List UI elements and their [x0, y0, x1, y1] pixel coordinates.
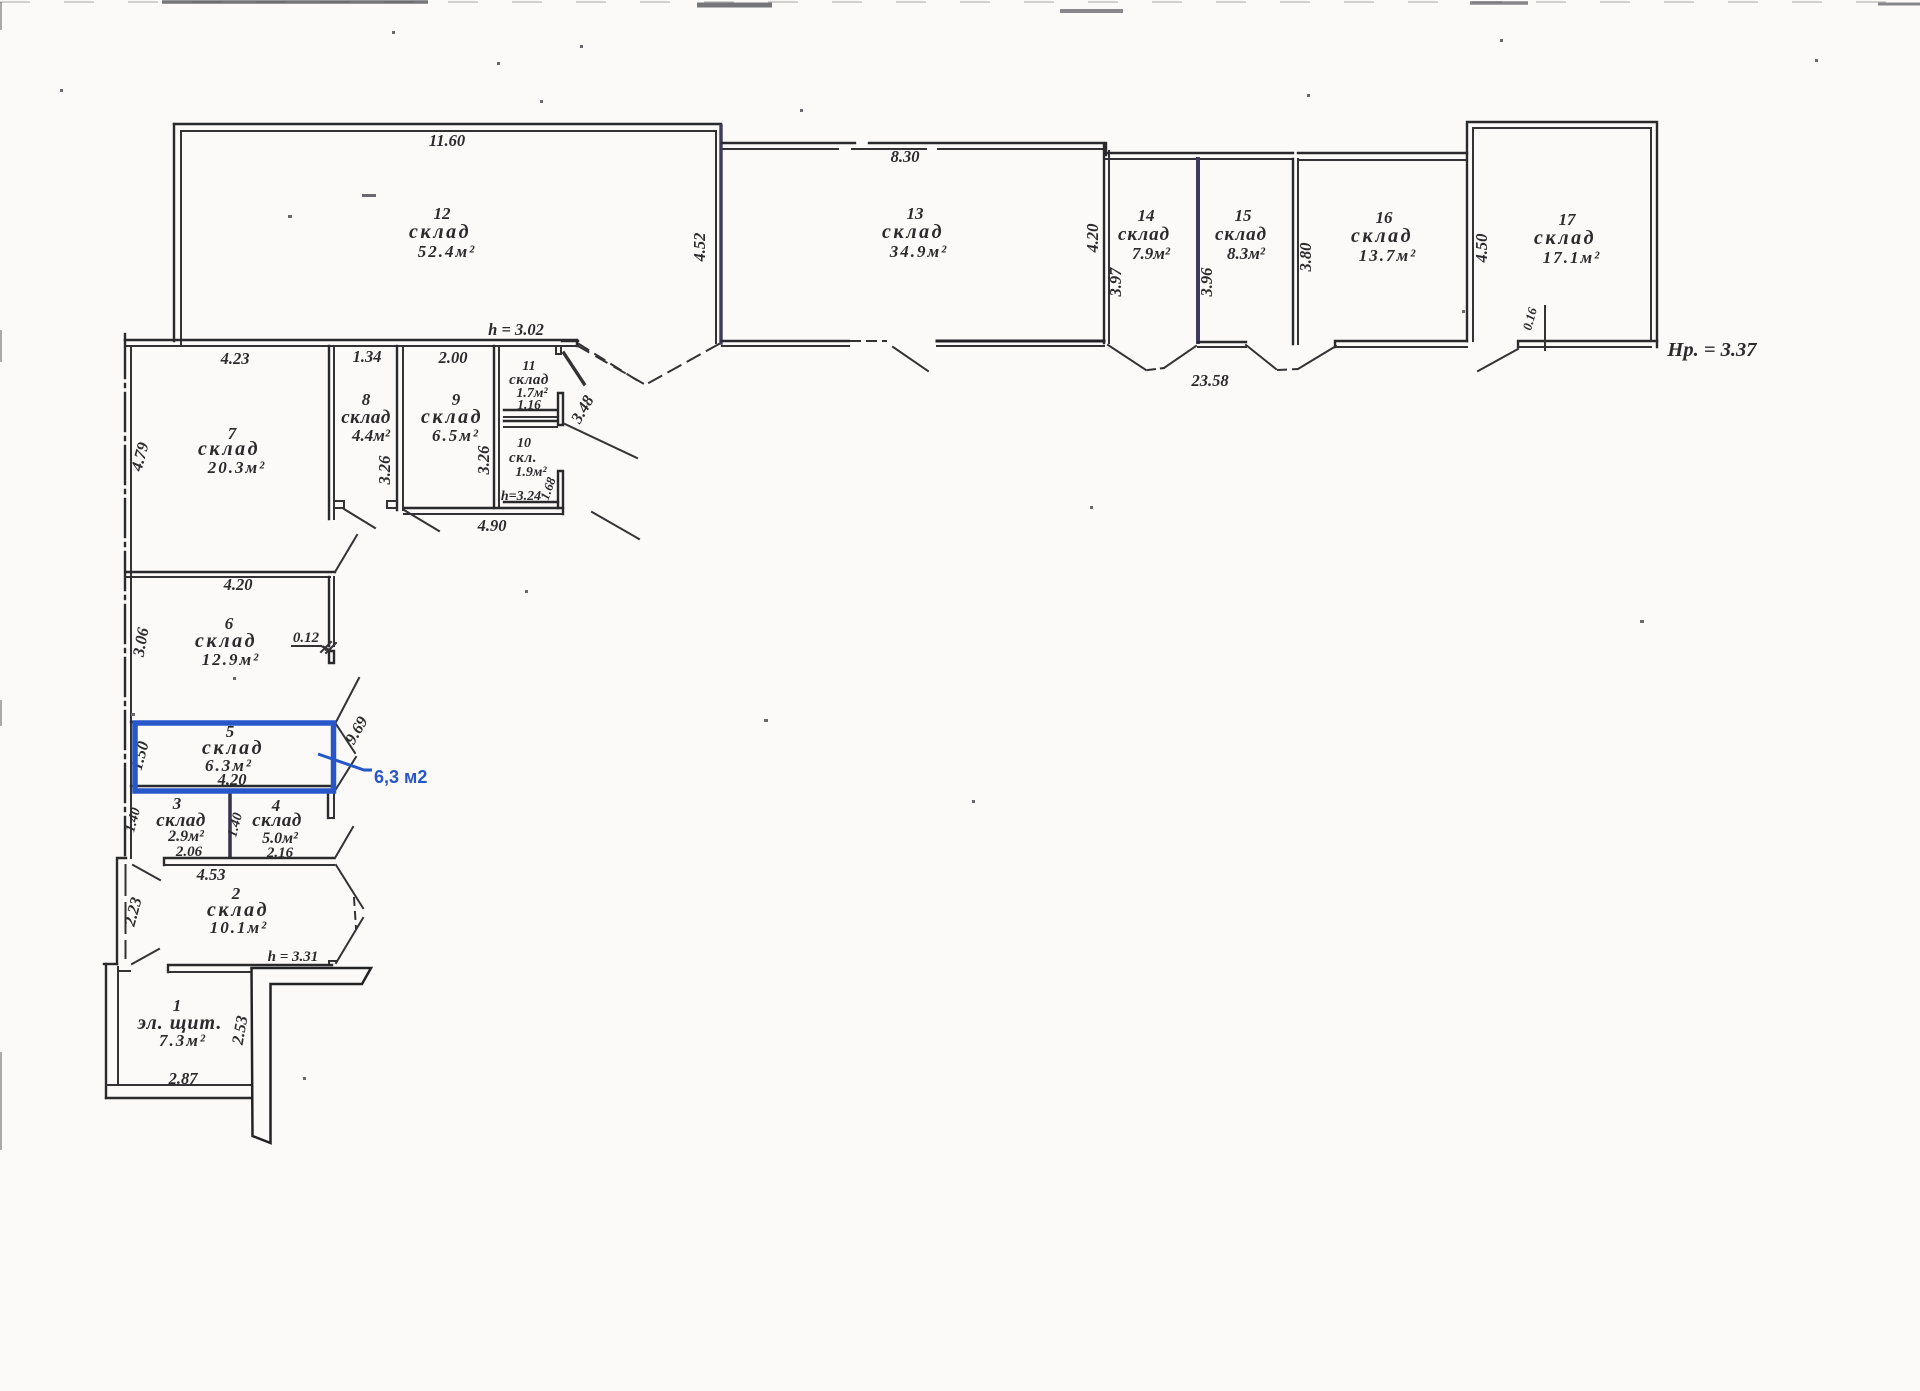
svg-text:склад: склад — [198, 438, 260, 460]
svg-text:склад: склад — [1215, 224, 1267, 245]
svg-text:склад: склад — [882, 221, 944, 243]
svg-text:8.30: 8.30 — [891, 147, 920, 166]
svg-text:12.9м²: 12.9м² — [202, 650, 261, 669]
svg-text:склад: склад — [252, 810, 302, 831]
svg-text:3.26: 3.26 — [474, 445, 493, 476]
svg-text:склад: склад — [1351, 225, 1413, 247]
svg-text:Нр. = 3.37: Нр. = 3.37 — [1666, 339, 1757, 361]
svg-text:4.50: 4.50 — [1472, 234, 1491, 264]
svg-text:2.87: 2.87 — [168, 1069, 199, 1088]
svg-text:4.20: 4.20 — [1083, 224, 1102, 254]
svg-text:4.23: 4.23 — [220, 349, 250, 368]
svg-text:14: 14 — [1138, 206, 1155, 225]
svg-text:7.3м²: 7.3м² — [159, 1031, 207, 1050]
svg-text:скл.: скл. — [509, 450, 537, 466]
svg-text:17.1м²: 17.1м² — [1543, 248, 1602, 267]
svg-text:3.80: 3.80 — [1296, 243, 1315, 273]
svg-text:h=3.24: h=3.24 — [501, 489, 541, 504]
svg-text:8.3м²: 8.3м² — [1227, 244, 1266, 263]
svg-text:4.90: 4.90 — [477, 516, 507, 535]
svg-text:4.53: 4.53 — [196, 865, 226, 884]
svg-text:4.20: 4.20 — [217, 770, 247, 789]
svg-text:23.58: 23.58 — [1190, 371, 1228, 390]
svg-text:2.00: 2.00 — [438, 348, 468, 367]
svg-text:11.60: 11.60 — [429, 131, 465, 150]
svg-text:15: 15 — [1235, 206, 1253, 225]
svg-text:3.97: 3.97 — [1106, 267, 1125, 298]
svg-text:10.1м²: 10.1м² — [210, 918, 269, 937]
svg-text:20.3м²: 20.3м² — [207, 458, 267, 477]
svg-text:3.96: 3.96 — [1197, 267, 1216, 298]
svg-text:4.20: 4.20 — [223, 575, 253, 594]
svg-text:6.5м²: 6.5м² — [432, 426, 480, 445]
svg-text:склад: склад — [1534, 227, 1596, 249]
svg-text:склад: склад — [1118, 224, 1170, 245]
svg-text:1.9м²: 1.9м² — [515, 465, 547, 480]
svg-text:3.26: 3.26 — [375, 455, 394, 486]
svg-text:4.52: 4.52 — [690, 233, 709, 263]
svg-text:7.9м²: 7.9м² — [1132, 244, 1171, 263]
svg-text:склад: склад — [195, 630, 257, 652]
svg-text:52.4м²: 52.4м² — [418, 242, 477, 261]
svg-text:1.34: 1.34 — [353, 347, 382, 366]
svg-text:2.9м²: 2.9м² — [167, 828, 205, 845]
svg-text:склад: склад — [409, 221, 471, 243]
svg-text:13.7м²: 13.7м² — [1359, 246, 1418, 265]
svg-text:0.12: 0.12 — [293, 630, 320, 646]
svg-text:1.16: 1.16 — [517, 397, 541, 412]
svg-text:склад: склад — [341, 407, 391, 428]
svg-text:h = 3.31: h = 3.31 — [268, 949, 319, 965]
svg-text:10: 10 — [517, 436, 531, 451]
svg-text:склад: склад — [421, 406, 483, 428]
svg-text:34.9м²: 34.9м² — [889, 242, 949, 261]
svg-text:6,3 м2: 6,3 м2 — [374, 767, 427, 787]
svg-text:4.4м²: 4.4м² — [351, 426, 391, 445]
svg-text:h = 3.02: h = 3.02 — [488, 320, 544, 339]
